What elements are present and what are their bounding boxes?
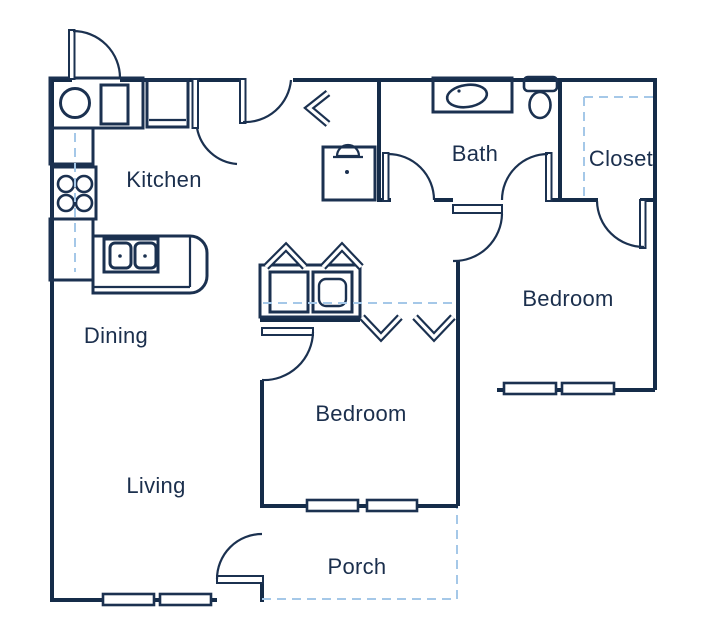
vanity-sink-icon bbox=[446, 82, 489, 109]
sink-drain-left bbox=[118, 254, 122, 258]
bifold-chevron-down-2 bbox=[415, 317, 453, 337]
room-label-bedroom-center: Bedroom bbox=[315, 401, 406, 426]
dryer-drum bbox=[319, 279, 346, 306]
room-label-closet: Closet bbox=[589, 146, 653, 171]
bedroom-right-door-leaf bbox=[453, 205, 502, 213]
hall-top-door-leaf bbox=[240, 79, 246, 123]
porch-door-leaf bbox=[217, 576, 263, 583]
hall-top-door-arc bbox=[243, 80, 291, 122]
water-heater-dot bbox=[345, 170, 349, 174]
window-bedroom-right-1 bbox=[504, 383, 556, 394]
kitchen-counter-strip-lower bbox=[50, 219, 93, 280]
sink-drain-right bbox=[143, 254, 147, 258]
floor-plan: Kitchen Bath Closet Bedroom Dining Bedro… bbox=[0, 0, 708, 634]
bath-door-leaf bbox=[383, 153, 389, 201]
bath-bedroom-door-leaf bbox=[546, 153, 552, 201]
window-bedroom-center-1 bbox=[307, 500, 358, 511]
laundry-fixtures bbox=[260, 145, 375, 317]
kitchen-opening-arc bbox=[197, 128, 237, 164]
room-label-bedroom-right: Bedroom bbox=[522, 286, 613, 311]
bath-door-arc bbox=[388, 154, 434, 200]
room-label-kitchen: Kitchen bbox=[126, 167, 201, 192]
porch-door-arc bbox=[217, 534, 262, 579]
bath-bedroom-door-arc bbox=[502, 154, 548, 200]
bath-fixtures bbox=[433, 77, 557, 118]
room-label-bath: Bath bbox=[452, 141, 498, 166]
entry-door-arc bbox=[73, 31, 120, 78]
closet-door-leaf bbox=[640, 200, 646, 248]
wall-living-south bbox=[50, 584, 262, 602]
window-living-2 bbox=[160, 594, 211, 605]
bedroom-center-door-leaf bbox=[262, 328, 313, 335]
kitchen-partition-stub bbox=[193, 79, 199, 128]
kitchen-counter-strip-upper bbox=[50, 128, 93, 164]
entry-door-leaf bbox=[69, 30, 75, 79]
vanity-faucet-dot bbox=[457, 89, 460, 92]
window-bedroom-right-2 bbox=[562, 383, 614, 394]
room-label-living: Living bbox=[126, 473, 185, 498]
window-bedroom-center-2 bbox=[367, 500, 417, 511]
room-label-porch: Porch bbox=[328, 554, 387, 579]
dishwasher-icon bbox=[101, 85, 128, 124]
closet-door-arc bbox=[597, 201, 644, 247]
bedroom-center-door-arc bbox=[262, 332, 313, 380]
room-label-dining: Dining bbox=[84, 323, 148, 348]
bifold-chevron-down-1 bbox=[362, 317, 400, 337]
toilet-bowl-icon bbox=[530, 92, 551, 118]
floor-plan-canvas: Kitchen Bath Closet Bedroom Dining Bedro… bbox=[0, 0, 708, 634]
washer-icon bbox=[270, 272, 308, 312]
kitchen-round-sink-icon bbox=[61, 89, 90, 118]
room-labels: Kitchen Bath Closet Bedroom Dining Bedro… bbox=[84, 141, 653, 579]
bedroom-right-door-arc bbox=[453, 214, 502, 261]
window-living-1 bbox=[103, 594, 154, 605]
